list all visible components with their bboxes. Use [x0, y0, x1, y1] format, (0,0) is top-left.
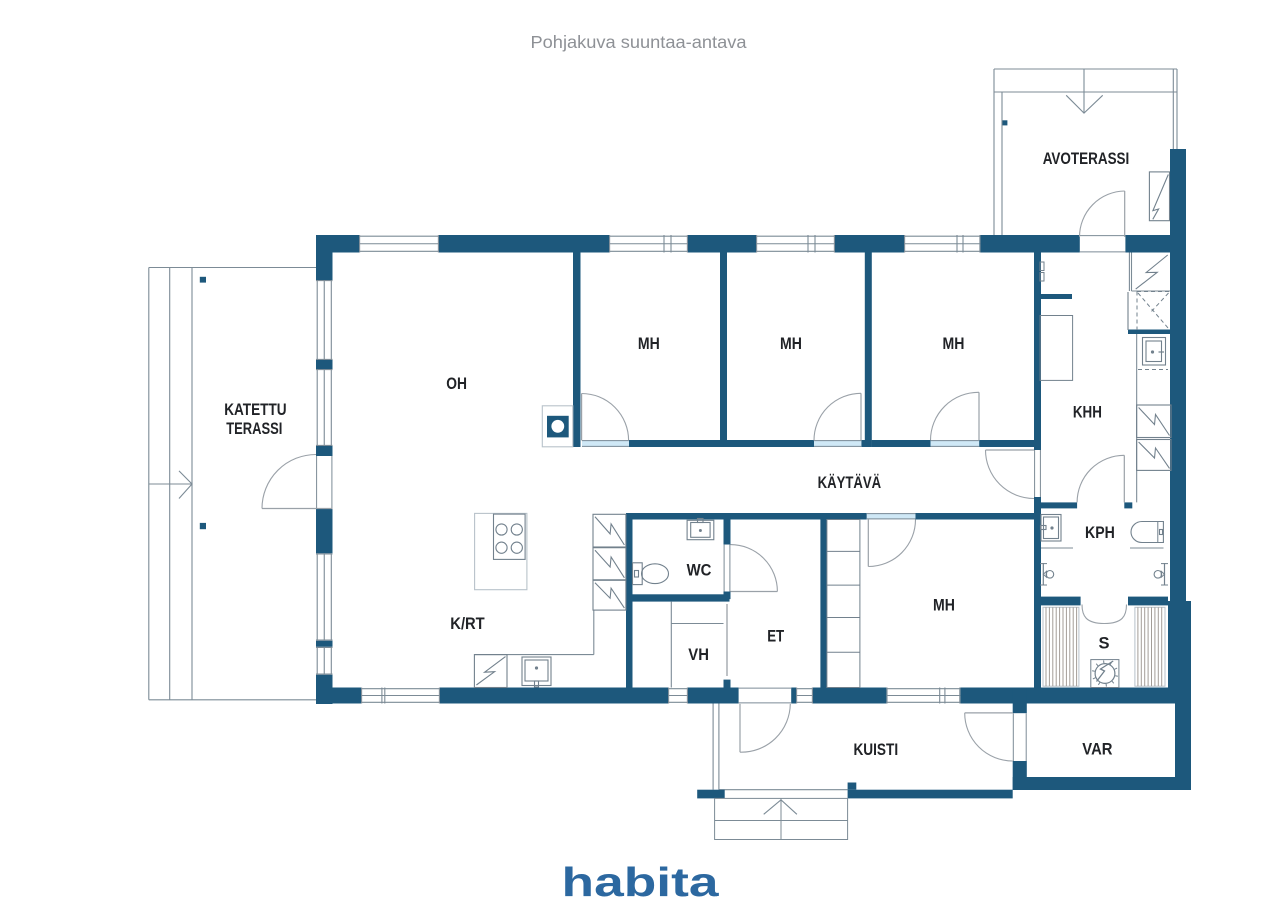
svg-text:KHH: KHH	[1073, 404, 1102, 422]
svg-text:KÄYTÄVÄ: KÄYTÄVÄ	[818, 474, 882, 492]
svg-text:K/RT: K/RT	[450, 615, 484, 633]
svg-text:OH: OH	[446, 375, 467, 393]
svg-text:WC: WC	[687, 562, 712, 580]
svg-text:TERASSI: TERASSI	[226, 420, 282, 438]
svg-text:KPH: KPH	[1085, 524, 1115, 542]
svg-text:Pohjakuva suuntaa-antava: Pohjakuva suuntaa-antava	[531, 32, 747, 52]
svg-text:MH: MH	[638, 335, 660, 353]
svg-text:KUISTI: KUISTI	[853, 741, 898, 759]
svg-text:MH: MH	[943, 335, 965, 353]
svg-text:AVOTERASSI: AVOTERASSI	[1043, 150, 1130, 168]
svg-text:MH: MH	[780, 335, 802, 353]
svg-text:VH: VH	[688, 646, 709, 664]
svg-text:KATETTU: KATETTU	[224, 401, 286, 419]
svg-text:habita: habita	[562, 859, 721, 905]
svg-text:MH: MH	[933, 597, 955, 615]
svg-text:S: S	[1098, 635, 1109, 653]
svg-text:VAR: VAR	[1082, 741, 1112, 759]
svg-text:ET: ET	[767, 628, 784, 646]
